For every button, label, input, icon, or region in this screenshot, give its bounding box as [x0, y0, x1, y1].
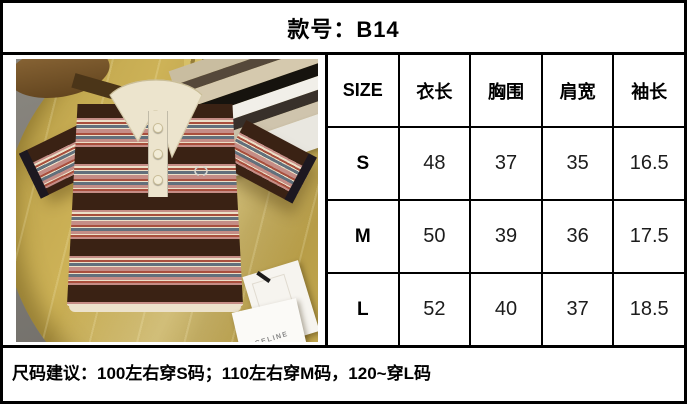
column-header-shoulder: 肩宽 [543, 55, 613, 126]
value-cell: 50 [400, 201, 470, 272]
value-cell: 35 [543, 128, 613, 199]
size-cell-s: S [328, 128, 398, 199]
value-cell: 17.5 [614, 201, 684, 272]
size-cell-l: L [328, 274, 398, 345]
column-header-size: SIZE [328, 55, 398, 126]
photo-pane: CELINE [3, 55, 325, 345]
value-cell: 37 [471, 128, 541, 199]
value-cell: 36 [543, 201, 613, 272]
size-cell-m: M [328, 201, 398, 272]
sheet-footer: 尺码建议：100左右穿S码；110左右穿M码，120~穿L码 [3, 345, 684, 395]
hang-tag-brand-text: CELINE [254, 331, 289, 342]
column-header-sleeve: 袖长 [614, 55, 684, 126]
sheet-header: 款号：B14 [3, 3, 684, 55]
main-section: CELINE SIZE 衣长 胸围 肩宽 袖长 S 48 37 35 16.5 … [3, 55, 684, 345]
value-cell: 40 [471, 274, 541, 345]
value-cell: 48 [400, 128, 470, 199]
value-cell: 16.5 [614, 128, 684, 199]
page-title: 款号：B14 [287, 12, 399, 44]
column-header-length: 衣长 [400, 55, 470, 126]
size-note: 尺码建议：100左右穿S码；110左右穿M码，120~穿L码 [12, 359, 431, 384]
value-cell: 39 [471, 201, 541, 272]
polo-hem [69, 304, 241, 312]
column-header-chest: 胸围 [471, 55, 541, 126]
size-table: SIZE 衣长 胸围 肩宽 袖长 S 48 37 35 16.5 M 50 39… [325, 55, 684, 345]
polo-button [153, 123, 163, 133]
polo-button [153, 175, 163, 185]
value-cell: 37 [543, 274, 613, 345]
value-cell: 52 [400, 274, 470, 345]
value-cell: 18.5 [614, 274, 684, 345]
polo-button [153, 149, 163, 159]
size-chart-sheet: 款号：B14 [0, 0, 687, 404]
product-photo: CELINE [16, 59, 318, 342]
brand-logo-icon [192, 165, 210, 177]
